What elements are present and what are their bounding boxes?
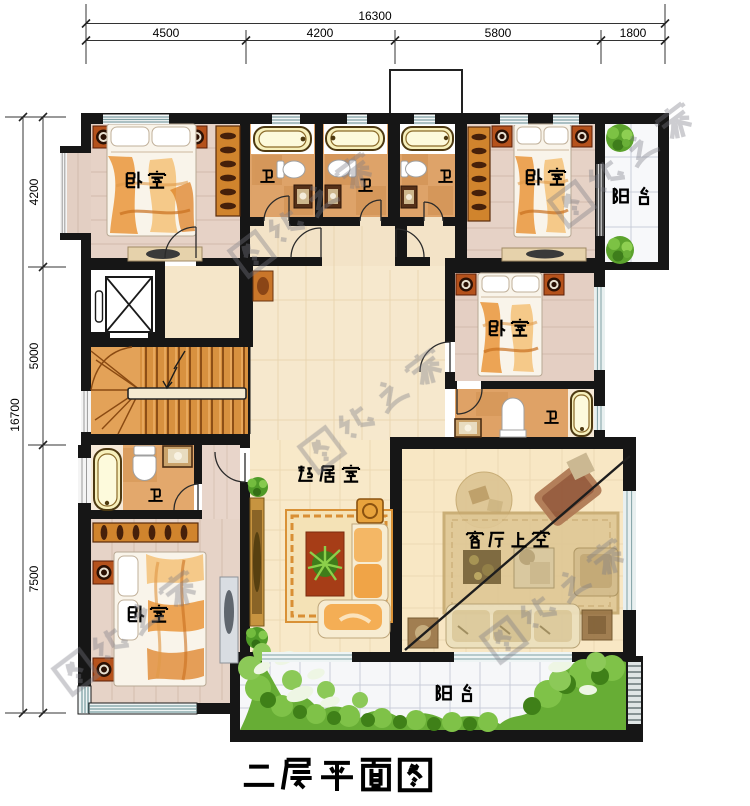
- svg-text:5800: 5800: [485, 26, 512, 40]
- svg-text:16300: 16300: [358, 9, 392, 23]
- svg-text:5000: 5000: [27, 342, 41, 369]
- svg-text:7500: 7500: [27, 565, 41, 592]
- svg-text:4200: 4200: [27, 178, 41, 205]
- svg-text:4200: 4200: [307, 26, 334, 40]
- svg-text:1800: 1800: [620, 26, 647, 40]
- svg-text:4500: 4500: [153, 26, 180, 40]
- svg-text:16700: 16700: [8, 398, 22, 432]
